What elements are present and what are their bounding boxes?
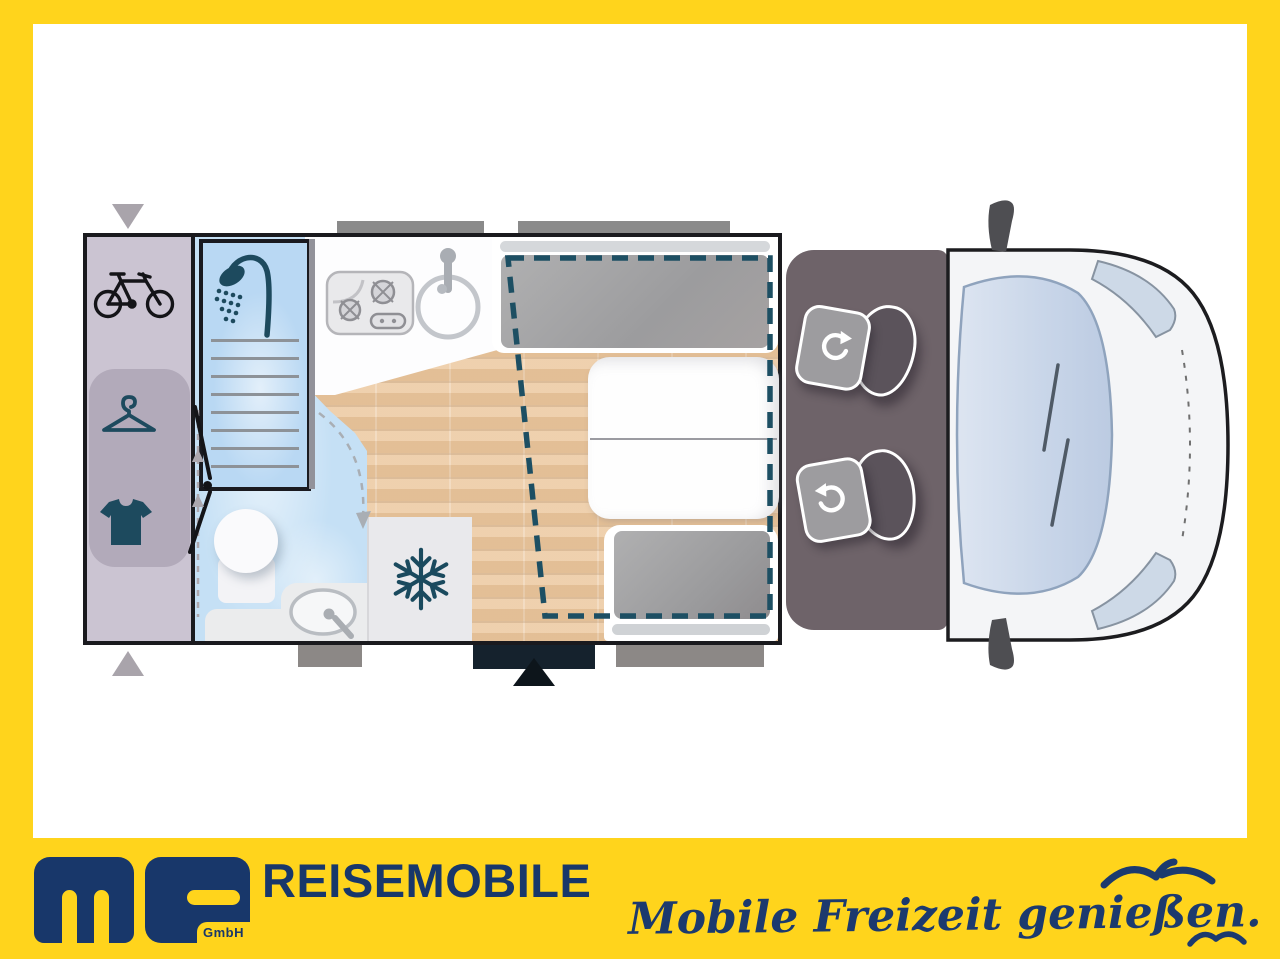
roof-window-kitchen (337, 221, 484, 233)
seat-cushion (793, 455, 874, 546)
side-window-bath (298, 645, 362, 667)
vehicle-front (930, 195, 1240, 675)
snowflake-icon (388, 546, 454, 612)
mirror-top-icon (988, 200, 1014, 252)
side-window-dinette (616, 645, 764, 667)
washbasin-icon (289, 587, 365, 641)
tshirt-icon (100, 499, 152, 547)
bench-headrest (612, 624, 770, 635)
logo-m-slot (94, 890, 109, 943)
logo-subtext: GmbH (203, 925, 244, 940)
logo-gmbh-notch: GmbH (197, 922, 250, 943)
garage-door-arrow-bottom-icon (112, 651, 144, 676)
door-swing-arc (313, 409, 377, 535)
drop-down-bed-outline (497, 249, 779, 621)
floorplan (83, 233, 782, 645)
dealer-advert-image: GmbH REISEMOBILE Mobile Freizeit genieße… (0, 0, 1280, 959)
logo-letter-s: GmbH (145, 857, 250, 943)
washroom-door-lines (183, 392, 225, 627)
logo-m-slot (62, 890, 77, 943)
driver-swivel-seat (789, 290, 925, 409)
company-name: REISEMOBILE (262, 853, 591, 908)
passenger-swivel-seat (789, 434, 925, 553)
seagull-icon-large (1098, 853, 1218, 901)
roof-window-bed (518, 221, 730, 233)
rotate-icon (811, 326, 855, 370)
seagull-icon-small (1186, 922, 1248, 956)
fridge (367, 517, 472, 641)
kitchen-sink-icon (413, 247, 483, 341)
seat-cushion (793, 303, 874, 394)
entry-arrow-icon (513, 658, 555, 686)
shower-icon (213, 245, 293, 343)
logo-s-slot (187, 890, 240, 905)
hanger-icon (101, 393, 157, 435)
garage-door-arrow-top-icon (112, 204, 144, 229)
windshield (957, 276, 1112, 593)
logo-letter-m (34, 857, 134, 943)
bicycle-icon (93, 261, 177, 321)
stove-icon (325, 270, 415, 336)
rotate-icon (812, 478, 856, 522)
